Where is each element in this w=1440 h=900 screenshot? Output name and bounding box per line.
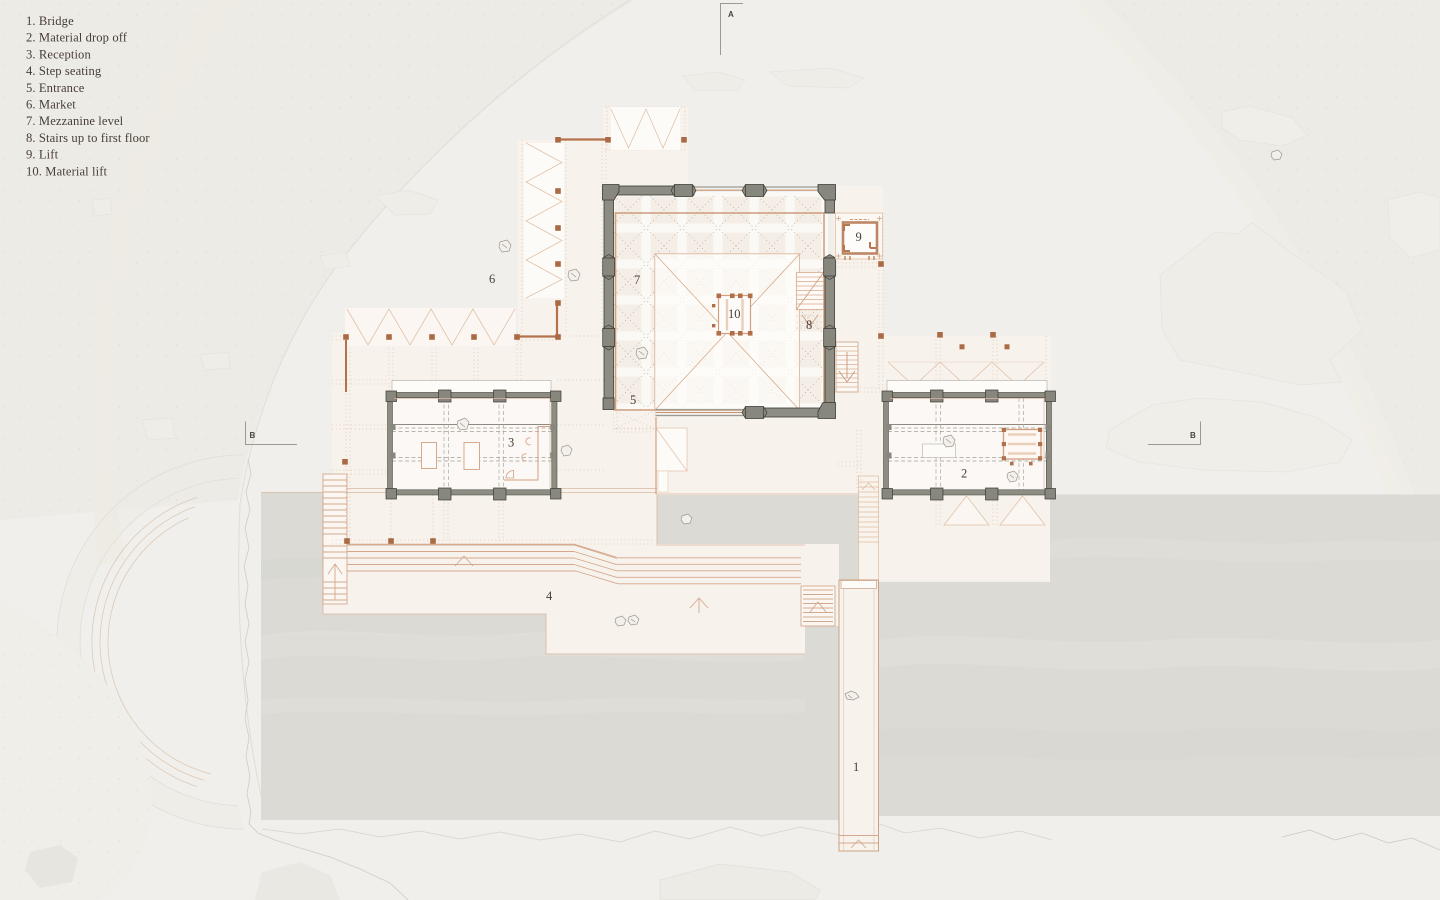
svg-text:A: A	[728, 10, 734, 19]
svg-text:4: 4	[546, 589, 553, 603]
svg-text:9: 9	[856, 230, 862, 244]
svg-text:10. Material lift: 10. Material lift	[26, 164, 107, 178]
svg-text:1. Bridge: 1. Bridge	[26, 14, 74, 28]
svg-text:8. Stairs up to first floor: 8. Stairs up to first floor	[26, 131, 150, 145]
svg-text:7. Mezzanine level: 7. Mezzanine level	[26, 114, 124, 128]
svg-text:8: 8	[806, 318, 812, 332]
svg-text:6: 6	[489, 272, 495, 286]
svg-text:2: 2	[961, 467, 967, 481]
svg-text:9. Lift: 9. Lift	[26, 148, 59, 162]
svg-text:7: 7	[634, 273, 640, 287]
svg-text:6. Market: 6. Market	[26, 98, 76, 112]
svg-text:B: B	[1190, 431, 1196, 440]
svg-text:B: B	[250, 431, 256, 440]
svg-text:2. Material drop off: 2. Material drop off	[26, 31, 128, 45]
svg-text:5: 5	[630, 393, 636, 407]
svg-text:1: 1	[853, 760, 859, 774]
svg-text:3: 3	[508, 436, 514, 450]
svg-text:3. Reception: 3. Reception	[26, 47, 91, 61]
svg-text:10: 10	[728, 307, 741, 321]
svg-text:5. Entrance: 5. Entrance	[26, 81, 85, 95]
svg-text:4. Step seating: 4. Step seating	[26, 64, 102, 78]
